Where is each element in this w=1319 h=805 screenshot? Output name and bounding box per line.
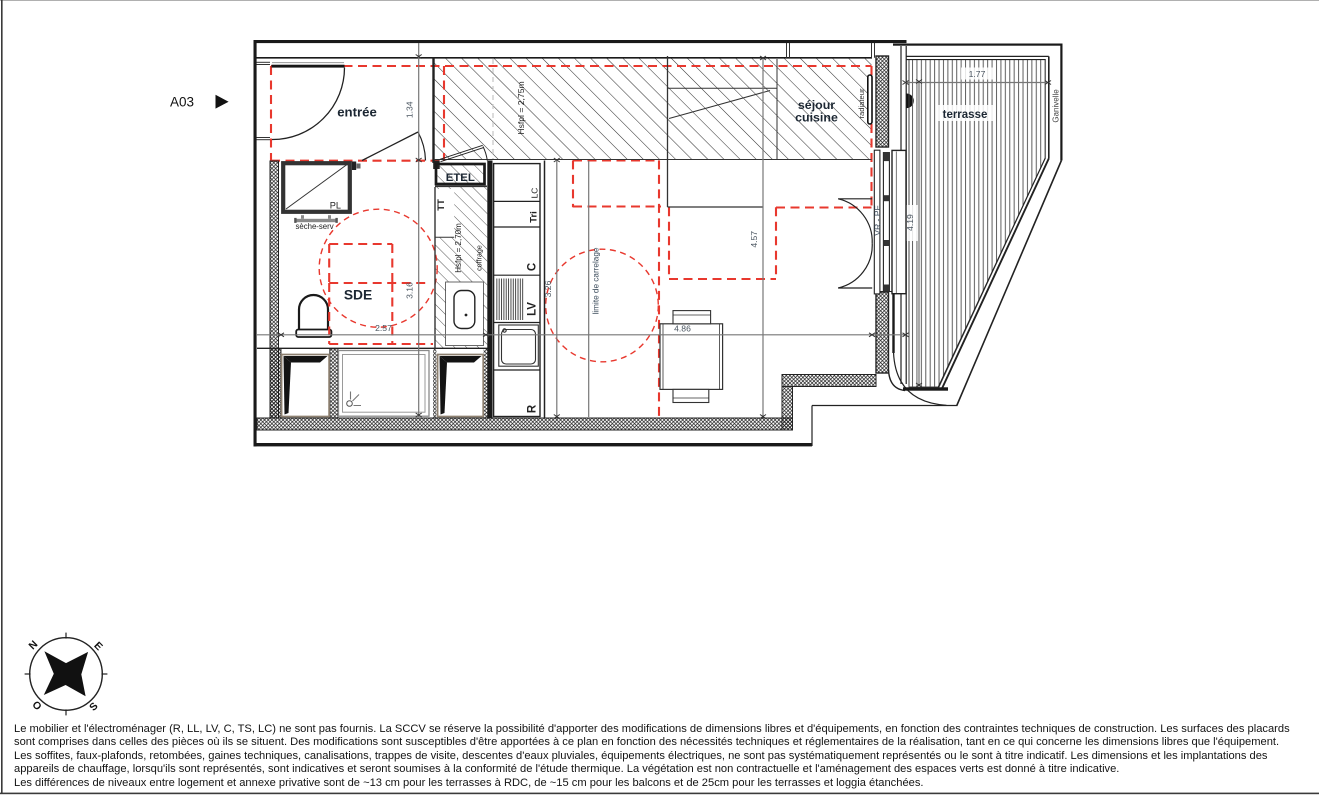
svg-text:SDE: SDE [344,288,372,303]
svg-text:ETEL: ETEL [446,172,475,184]
svg-text:coffrage: coffrage [475,245,484,271]
svg-text:LC: LC [530,188,540,199]
svg-text:TT: TT [436,199,447,211]
svg-text:limite de carrelage: limite de carrelage [592,247,601,314]
svg-text:4.57: 4.57 [749,231,759,248]
svg-text:cuisine: cuisine [795,111,838,125]
svg-text:Hsfpl = 2,75m: Hsfpl = 2,75m [516,81,526,134]
svg-text:Ganivelle: Ganivelle [1052,89,1061,123]
svg-text:C: C [527,263,539,271]
svg-text:2.57: 2.57 [375,323,392,333]
svg-text:3.16: 3.16 [405,282,415,299]
svg-text:PL: PL [330,201,341,211]
svg-text:sèche-serv: sèche-serv [296,222,334,231]
svg-text:R: R [527,404,539,413]
svg-text:VR - PF: VR - PF [873,205,883,236]
svg-text:entrée: entrée [337,105,377,120]
svg-text:Tri: Tri [528,211,539,222]
svg-text:4.19: 4.19 [905,214,915,231]
svg-text:3.26: 3.26 [543,280,553,297]
svg-text:1.34: 1.34 [405,101,415,118]
svg-text:radiateur: radiateur [857,88,866,118]
svg-text:A03: A03 [170,95,194,110]
svg-text:S: S [87,700,100,713]
svg-text:LV: LV [527,302,539,316]
svg-text:Hsfpl = 2,70m: Hsfpl = 2,70m [454,223,463,273]
svg-text:1.77: 1.77 [969,69,986,79]
svg-text:4.86: 4.86 [674,324,691,334]
svg-text:terrasse: terrasse [943,109,988,121]
